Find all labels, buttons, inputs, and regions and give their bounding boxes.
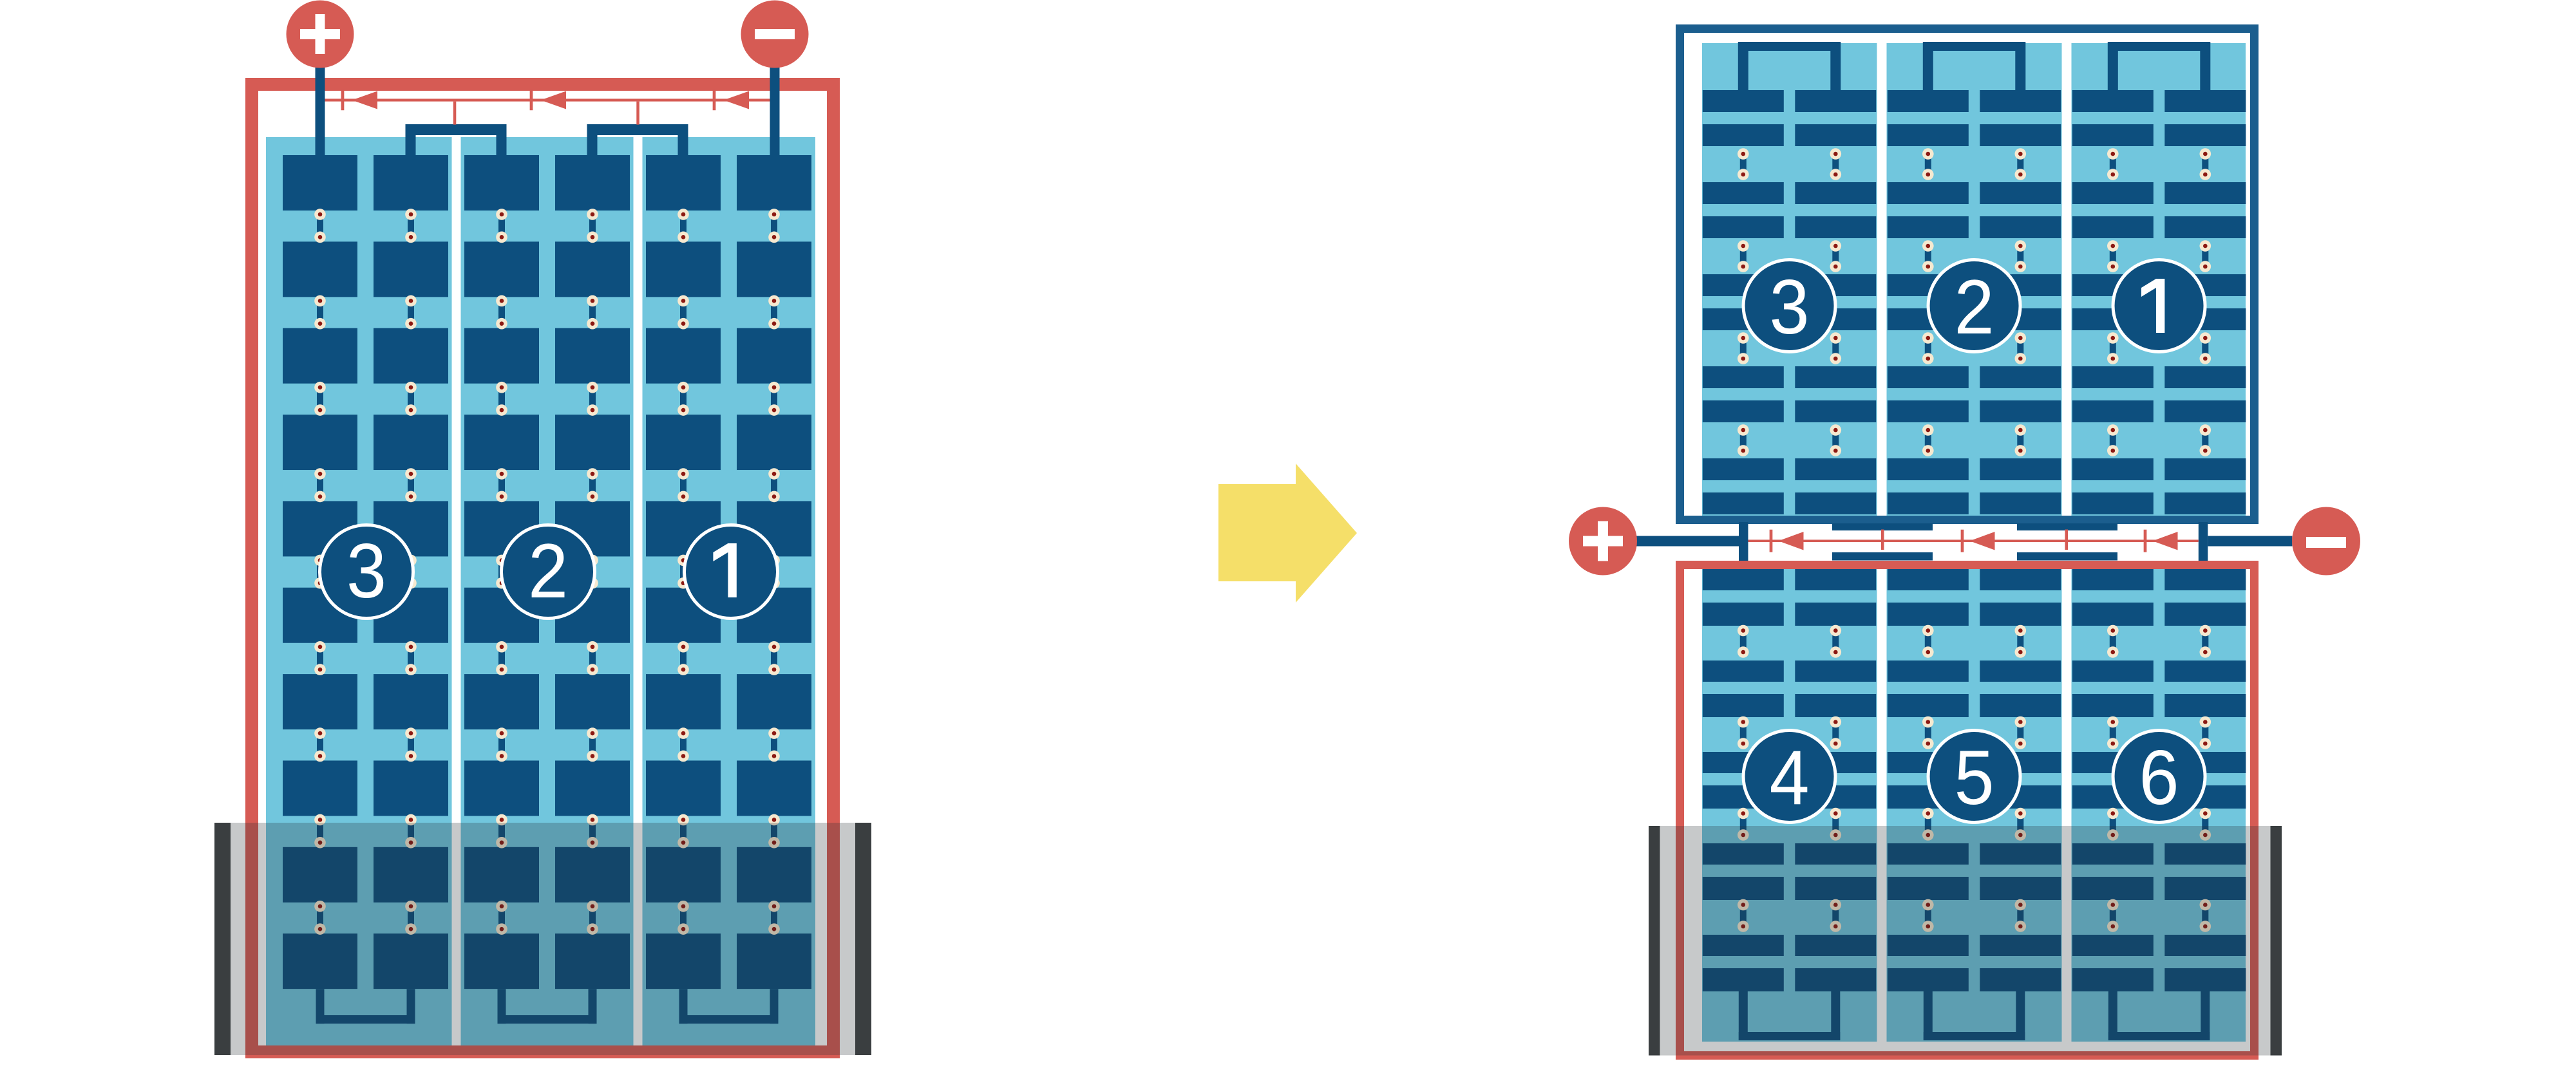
- svg-text:3: 3: [1770, 263, 1810, 350]
- svg-text:2: 2: [528, 527, 568, 614]
- svg-text:6: 6: [2139, 734, 2179, 821]
- svg-text:4: 4: [1770, 734, 1810, 821]
- svg-text:2: 2: [1955, 263, 1994, 350]
- svg-text:3: 3: [346, 527, 386, 614]
- svg-text:5: 5: [1955, 734, 1994, 821]
